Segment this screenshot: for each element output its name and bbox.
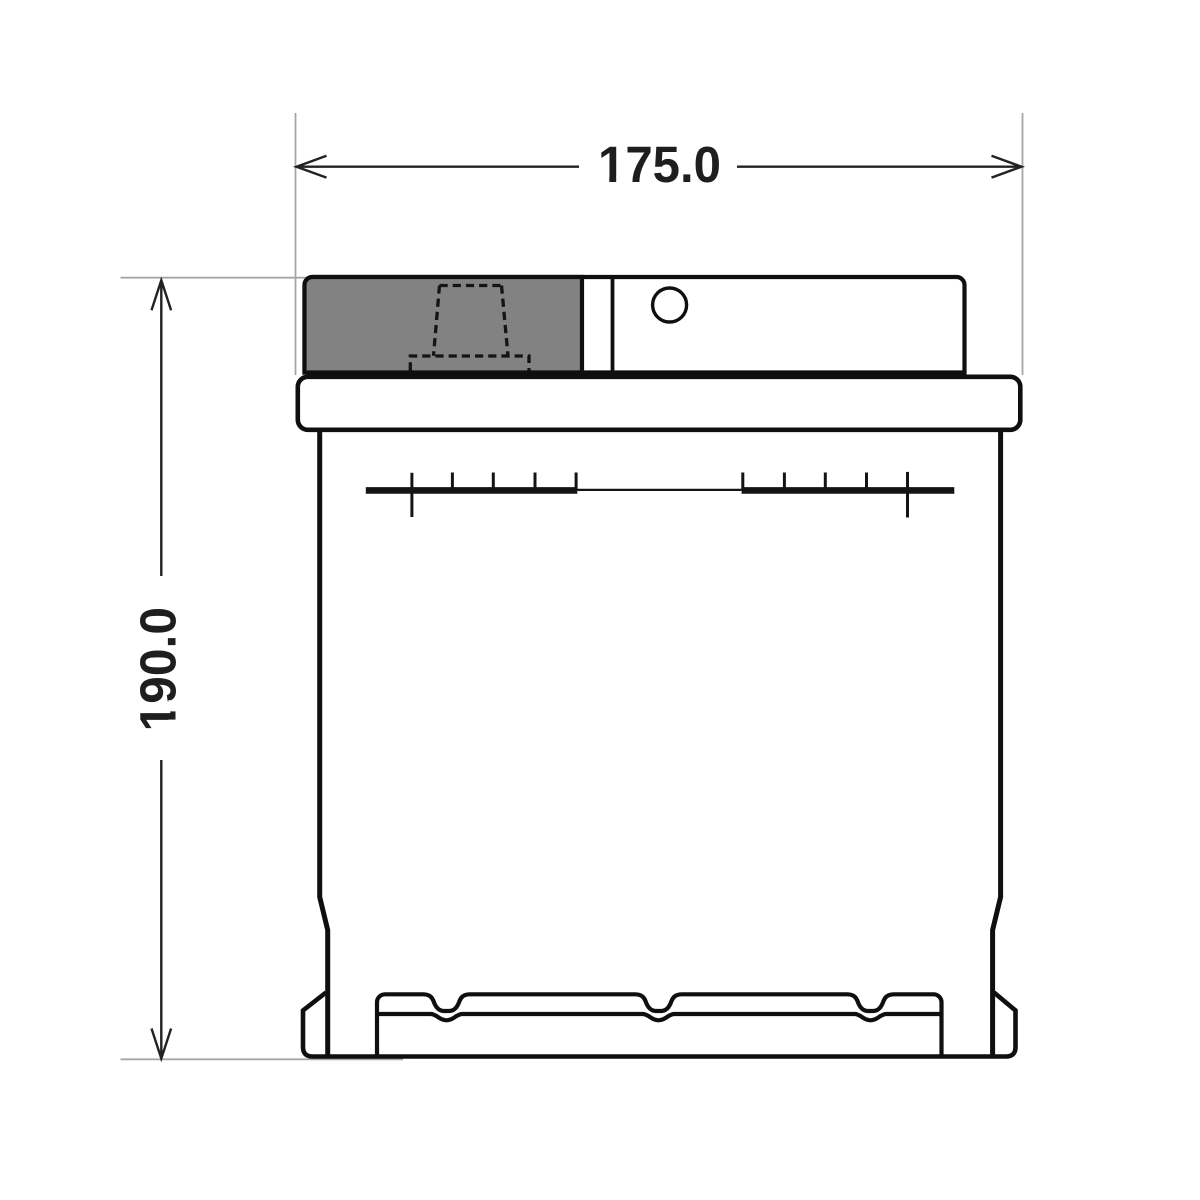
svg-text:190.0: 190.0: [130, 607, 187, 732]
svg-text:175.0: 175.0: [598, 136, 721, 193]
